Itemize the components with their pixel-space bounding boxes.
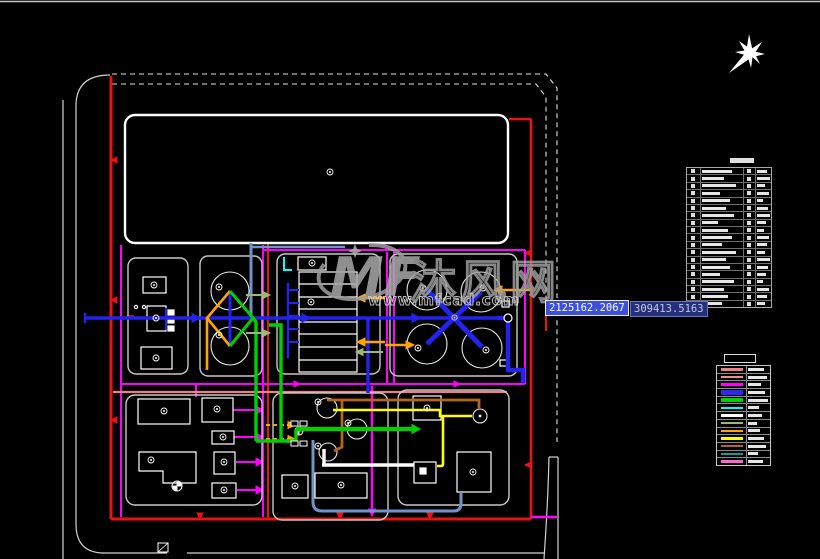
equipment-legend-row <box>687 183 771 190</box>
pipe-legend-row <box>717 397 770 405</box>
equipment-legend-row <box>687 257 771 264</box>
pipe-legend <box>716 354 771 466</box>
equipment-legend-row <box>687 264 771 271</box>
pipe-legend-row <box>717 451 770 459</box>
pipe-legend-row <box>717 443 770 451</box>
block-pump-house <box>126 395 262 505</box>
pipe-legend-row <box>717 428 770 436</box>
green-pipes <box>230 291 420 441</box>
watermark-url: www.mfcad.com <box>368 291 520 309</box>
cad-viewport: MF 沐风网 www.mfcad.com 2125162.2067 309413… <box>0 0 820 559</box>
pipe-legend-row <box>717 389 770 397</box>
equipment-legend-row <box>687 190 771 197</box>
pump-sump <box>319 443 337 461</box>
equipment-legend-row <box>687 242 771 249</box>
pipe-legend-row <box>717 458 770 465</box>
pipe-legend-table <box>716 365 771 466</box>
equipment-legend-row <box>687 234 771 241</box>
gate-icon <box>158 543 168 552</box>
pipe-fitting <box>504 314 512 322</box>
main-building <box>125 115 508 243</box>
equipment-legend-table <box>686 167 772 308</box>
equipment-legend-row <box>687 175 771 182</box>
equipment-legend-title <box>730 158 754 163</box>
block-dewatering-house <box>398 390 509 505</box>
equipment-legend-row <box>687 212 771 219</box>
equipment-legend-row <box>687 168 771 175</box>
pipe-legend-row <box>717 404 770 412</box>
pipe-legend-row <box>717 435 770 443</box>
equipment-legend-row <box>687 220 771 227</box>
equipment-legend-row <box>687 198 771 205</box>
equipment-legend-row <box>687 279 771 286</box>
equipment-legend <box>686 158 772 308</box>
equipment-legend-row <box>687 293 771 300</box>
watermark: MF 沐风网 www.mfcad.com <box>314 237 560 309</box>
pipe-legend-row <box>717 420 770 428</box>
equipment-legend-row <box>687 271 771 278</box>
equipment-legend-row <box>687 249 771 256</box>
pipe-legend-title <box>724 354 756 363</box>
block-blower-house <box>273 393 388 520</box>
equipment-legend-row <box>687 227 771 234</box>
coordinate-y-input[interactable]: 309413.5163 <box>630 301 708 317</box>
pipe-legend-row <box>717 381 770 389</box>
equipment-legend-row <box>687 286 771 293</box>
pipe-legend-row <box>717 374 770 382</box>
pipe-legend-row <box>717 412 770 420</box>
coordinate-x-input[interactable]: 2125162.2067 <box>545 300 629 316</box>
cyan-pipe <box>284 257 292 270</box>
pipe-legend-row <box>717 366 770 374</box>
north-arrow-icon <box>729 34 765 73</box>
equipment-legend-row <box>687 205 771 212</box>
